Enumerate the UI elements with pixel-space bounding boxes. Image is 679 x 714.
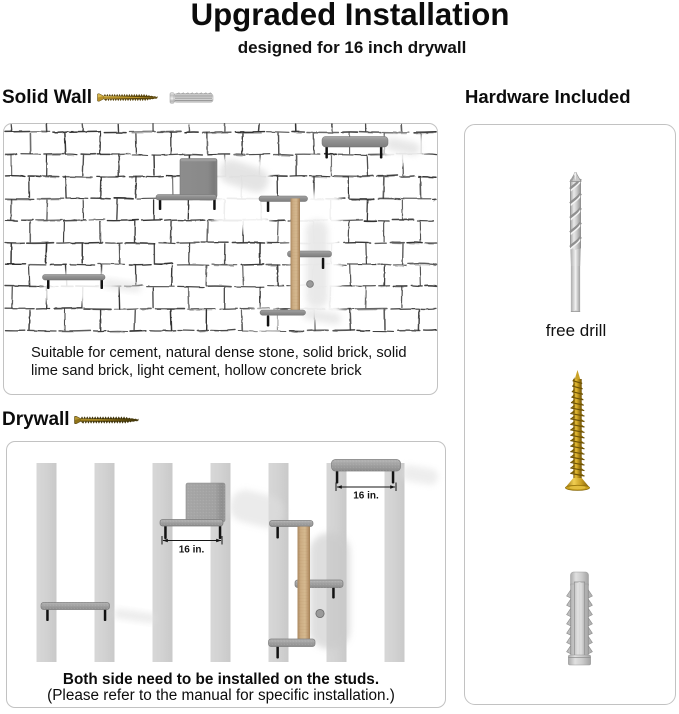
svg-text:16 in.: 16 in. — [179, 545, 205, 556]
svg-text:16 in.: 16 in. — [353, 491, 379, 502]
